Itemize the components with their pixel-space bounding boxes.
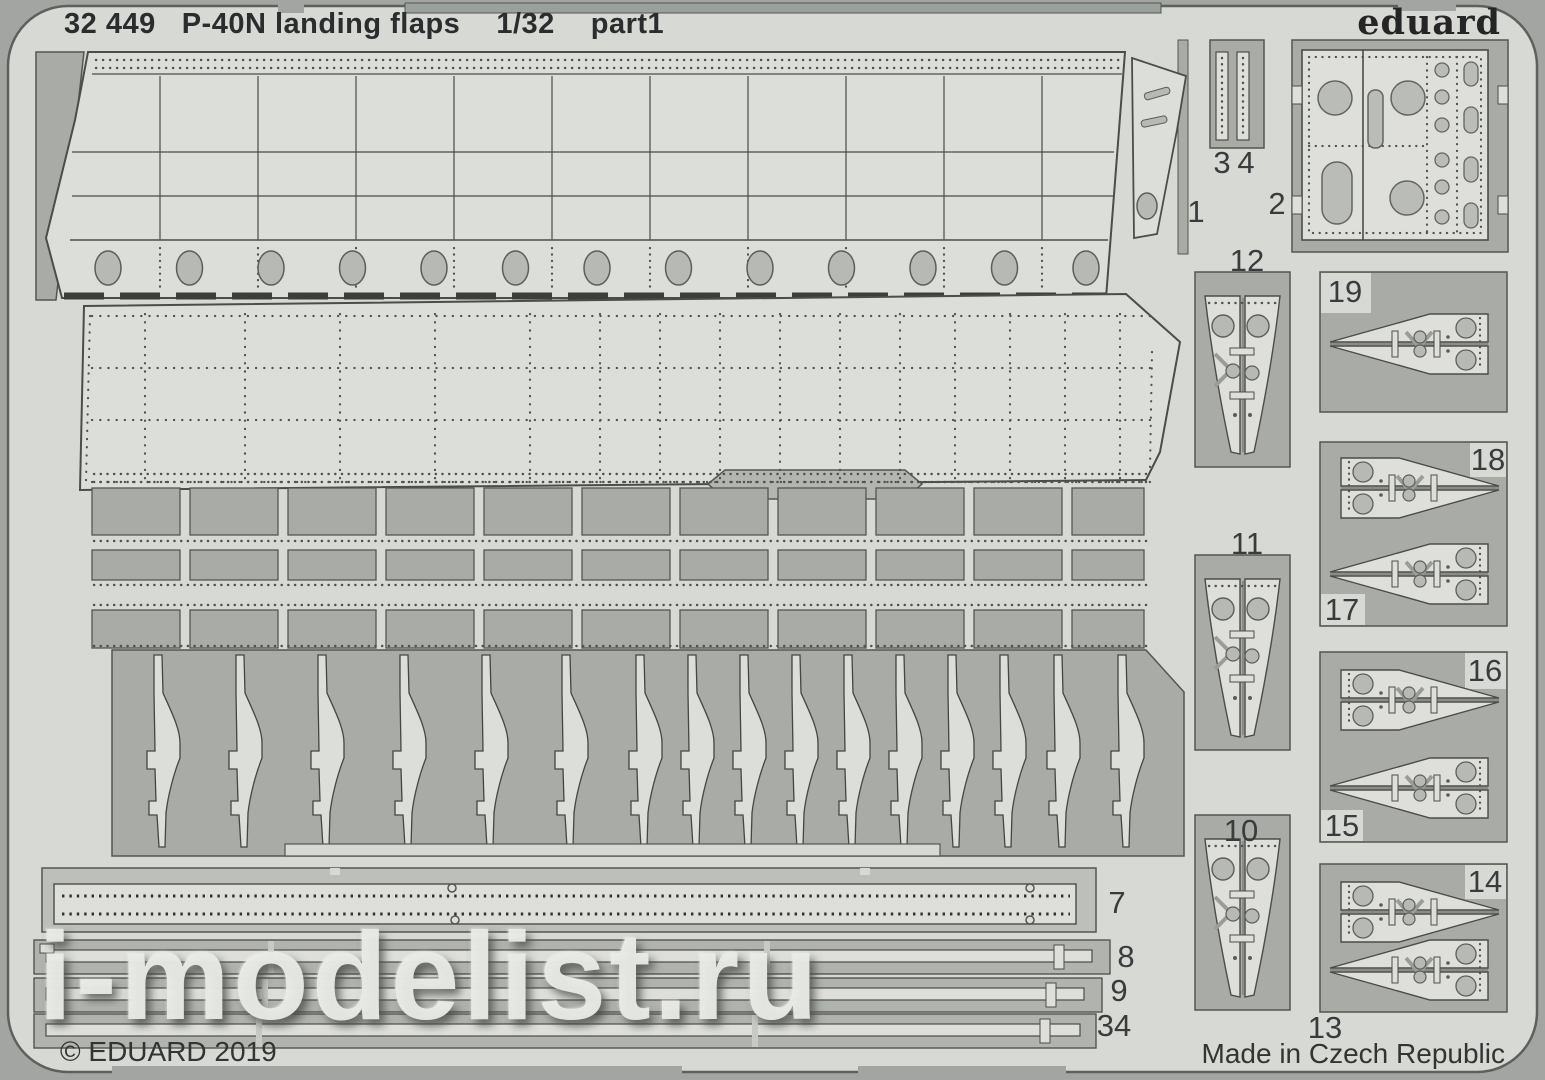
part-label-16: 16 (1468, 653, 1502, 689)
part-11 (1195, 555, 1290, 750)
part-label-15: 15 (1325, 808, 1359, 844)
part-label-18: 18 (1471, 442, 1505, 478)
made-in-text: Made in Czech Republic (1202, 1038, 1506, 1070)
part-label-7: 7 (1108, 885, 1125, 921)
part-label-9: 9 (1110, 973, 1127, 1009)
copyright-text: © EDUARD 2019 (60, 1036, 277, 1068)
part-label-2: 2 (1268, 186, 1285, 222)
catalog-number: 32 449 (64, 8, 156, 41)
part-12 (1195, 272, 1290, 467)
part-designation: part1 (591, 8, 664, 41)
scale-label: 1/32 (496, 8, 554, 41)
part-label-17: 17 (1325, 592, 1359, 628)
part-label-13: 13 (1308, 1010, 1342, 1046)
part-label-4: 4 (1237, 145, 1254, 181)
product-name: P-40N landing flaps (182, 8, 461, 41)
part-label-34: 34 (1097, 1008, 1131, 1044)
sheet-title: 32 449 P-40N landing flaps 1/32 part1 (64, 8, 664, 41)
part-label-11: 11 (1231, 526, 1263, 562)
brand-logo: eduard (1357, 2, 1501, 43)
part-label-1: 1 (1187, 194, 1204, 230)
part-label-19: 19 (1328, 274, 1362, 310)
part-label-14: 14 (1468, 864, 1502, 900)
part-label-10: 10 (1224, 813, 1258, 849)
watermark: i-modelist.ru (38, 906, 821, 1048)
flap-skin-panel (80, 294, 1180, 499)
part-label-8: 8 (1117, 939, 1134, 975)
part-label-12: 12 (1230, 243, 1264, 279)
part-label-3: 3 (1213, 145, 1230, 181)
photoetch-sheet-photo: i-modelist.ru 32 449 P-40N landing flaps… (0, 0, 1545, 1080)
flap-ribs (112, 650, 1184, 856)
flap-lattice-frame (92, 474, 1150, 648)
part-1-flap-frame (36, 40, 1188, 300)
